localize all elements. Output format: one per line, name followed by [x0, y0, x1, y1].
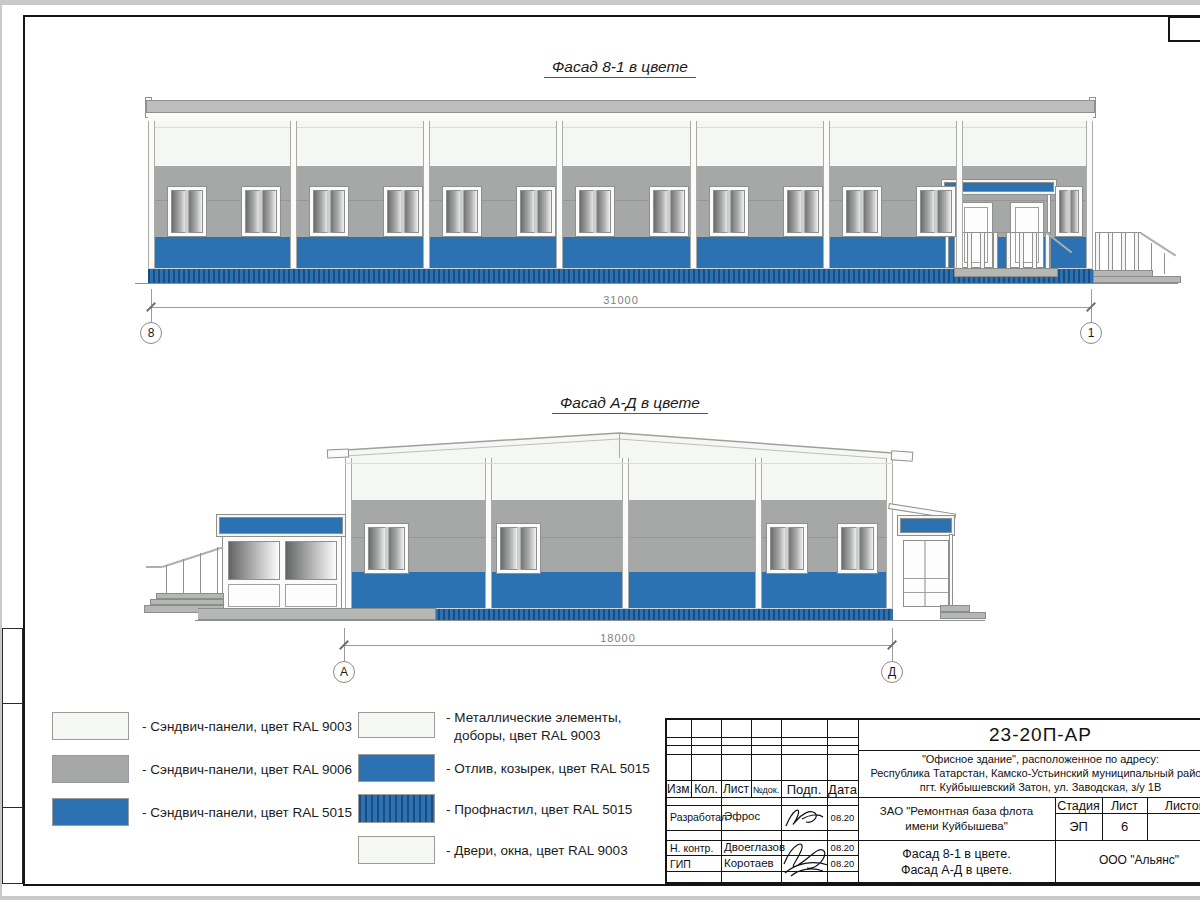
pilaster [823, 121, 830, 268]
ridge-post [619, 433, 620, 458]
wall-band-white [345, 480, 893, 500]
axis-bubble-8: 8 [140, 322, 162, 344]
porch-canopy [217, 515, 345, 536]
porch-railing [954, 232, 1050, 269]
col-header-ndoc: №док. [751, 785, 781, 795]
window [843, 187, 881, 236]
col-header-podp: Подп. [781, 782, 827, 797]
walkway-slab [198, 608, 436, 620]
pilaster [886, 458, 893, 608]
window [838, 524, 877, 573]
legend-label: доборы, цвет RAL 9003 [454, 728, 601, 743]
window [917, 187, 955, 236]
facade1-building [148, 95, 1093, 283]
customer-line2: имени Куйбышева" [858, 820, 1055, 832]
legend-swatch-profnastil-ral5015 [358, 794, 435, 823]
pilaster [485, 458, 492, 608]
role-gip: ГИП [670, 858, 691, 870]
tb-line [667, 745, 858, 746]
name-dvoeglazov: Двоеглазов [724, 841, 785, 853]
facade2-building [345, 428, 893, 620]
porch-step [954, 268, 1058, 277]
door-panel [228, 584, 280, 607]
railing-post [1164, 253, 1165, 274]
sheet-number-value: 6 [1102, 819, 1147, 834]
wall-band-blue [345, 572, 893, 608]
legend-label: - Сэндвич-панели, цвет RAL 9003 [142, 719, 352, 734]
title-block: 23-20П-АР "Офисное здание", расположенно… [665, 718, 1200, 884]
role-nkontr: Н. контр. [670, 842, 713, 854]
plinth-profiled-sheet [148, 268, 1093, 284]
railing-post [1151, 243, 1152, 270]
col-header-data: Дата [827, 782, 858, 797]
porch-glazing [285, 541, 337, 580]
pilaster [755, 458, 762, 608]
stair-step [1093, 276, 1181, 283]
sheet-header: Лист [1102, 799, 1147, 813]
sheet-subject-line2: Фасад А-Д в цвете. [858, 863, 1055, 877]
legend-label: - Профнастил, цвет RAL 5015 [446, 802, 632, 817]
col-header-izm: Изм. [667, 782, 691, 796]
date-1: 08.20 [827, 812, 858, 823]
project-address-line1: "Офисное здание", расположенное по адрес… [858, 753, 1200, 765]
role-razrabotal: Разработал [670, 811, 727, 823]
legend-swatch-ral9003 [52, 712, 129, 740]
tb-line [667, 780, 858, 781]
sheet-subject-line1: Фасад 8-1 в цвете. [858, 847, 1055, 861]
pilaster [423, 121, 430, 268]
window [767, 524, 807, 573]
eave-ledge [891, 450, 914, 462]
legend-swatch-metal-ral9003 [358, 712, 435, 738]
pilaster [556, 121, 563, 268]
facade2-title: Фасад А-Д в цвете [30, 394, 1200, 412]
tb-line [858, 750, 1200, 751]
legend-swatch-doors-ral9003 [358, 836, 435, 864]
stage-header: Стадия [1055, 799, 1102, 813]
stair-handrail [146, 566, 162, 568]
axis-label: А [340, 665, 348, 679]
doc-number: 23-20П-АР [858, 724, 1200, 746]
eave-ledge [327, 448, 349, 458]
window [365, 524, 408, 573]
col-header-kol: Кол. [691, 782, 721, 796]
stage-value: ЭП [1055, 819, 1102, 834]
dimension-value: 31000 [521, 294, 721, 306]
design-org: ООО "Альянс" [1055, 853, 1200, 867]
stair-railing [1095, 232, 1141, 271]
tb-line [667, 754, 858, 755]
name-korotaev: Коротаев [724, 857, 774, 869]
stair-step [940, 605, 970, 612]
door-panel [285, 584, 337, 607]
legend-label: - Отлив, козырек, цвет RAL 5015 [446, 761, 650, 776]
axis-bubble-1: 1 [1080, 322, 1102, 344]
drawing-sheet-canvas: Фасад 8-1 в цвете 31000 8 1 Фаса [0, 0, 1200, 900]
legend-swatch-ral9006 [52, 755, 129, 783]
window [784, 187, 822, 236]
tb-line [667, 830, 858, 831]
pilaster [345, 458, 352, 608]
left-margin-divider [2, 703, 23, 704]
legend-swatch-otliv-ral5015 [358, 754, 435, 782]
signature-dvoeglazov-korotaev [779, 836, 833, 880]
dimension-line [344, 645, 892, 646]
porch-glazing [228, 541, 280, 580]
col-header-list: Лист [721, 782, 751, 796]
pilaster [290, 121, 297, 268]
ground-line [135, 283, 1178, 284]
legend-label: - Сэндвич-панели, цвет RAL 5015 [142, 805, 352, 820]
window [384, 187, 422, 236]
porch-doorway [903, 540, 949, 607]
axis-bubble-d: Д [881, 661, 903, 683]
corner-stamp-box [1168, 16, 1200, 42]
project-address-line3: пгт. Куйбышевский Затон, ул. Заводская, … [858, 781, 1200, 793]
window [576, 187, 614, 236]
pilaster [622, 458, 629, 608]
axis-label: Д [888, 665, 896, 679]
legend-label: - Металлические элементы, [446, 710, 621, 725]
facade1-title: Фасад 8-1 в цвете [20, 58, 1200, 76]
roof-cap [146, 100, 1095, 113]
porch-canopy [898, 516, 954, 535]
stair-step [940, 612, 986, 619]
sheets-total-header: Листов [1147, 799, 1200, 813]
window [497, 524, 540, 573]
panel-joint [345, 537, 893, 538]
project-address-line2: Республика Татарстан, Камско-Устьинский … [858, 767, 1200, 779]
window [710, 187, 748, 236]
left-margin-divider [2, 807, 23, 808]
door-mullion [904, 578, 948, 579]
axis-label: 1 [1088, 326, 1095, 340]
left-margin-stamp-column [2, 628, 23, 884]
dimension-value: 18000 [518, 632, 718, 644]
signature-efros [783, 804, 825, 830]
pilaster [148, 121, 155, 268]
pilaster [690, 121, 697, 268]
window [310, 187, 348, 236]
customer-line1: ЗАО "Ремонтная база флота [858, 805, 1055, 817]
door-mullion [904, 592, 948, 593]
axis-bubble-a: А [333, 661, 355, 683]
door-mullion [924, 541, 926, 606]
window [517, 187, 555, 236]
legend-label: - Двери, окна, цвет RAL 9003 [446, 843, 628, 858]
tb-line [1055, 813, 1200, 814]
tb-line [667, 737, 858, 738]
ground-line [195, 620, 985, 621]
tb-line [667, 797, 1200, 798]
window [1056, 187, 1082, 236]
canopy-post [949, 534, 953, 607]
name-efros: Эфрос [724, 810, 760, 822]
window [443, 187, 481, 236]
window [168, 187, 206, 236]
panel-joint [345, 463, 893, 464]
axis-label: 8 [148, 326, 155, 340]
legend-swatch-ral5015 [52, 798, 129, 826]
pilaster [1086, 121, 1093, 268]
window [650, 187, 688, 236]
dimension-line [151, 307, 1091, 308]
wall-band-gray [345, 500, 893, 572]
legend-label: - Сэндвич-панели, цвет RAL 9006 [142, 762, 352, 777]
window [242, 187, 280, 236]
tb-line [667, 805, 858, 806]
pilaster [956, 121, 963, 268]
